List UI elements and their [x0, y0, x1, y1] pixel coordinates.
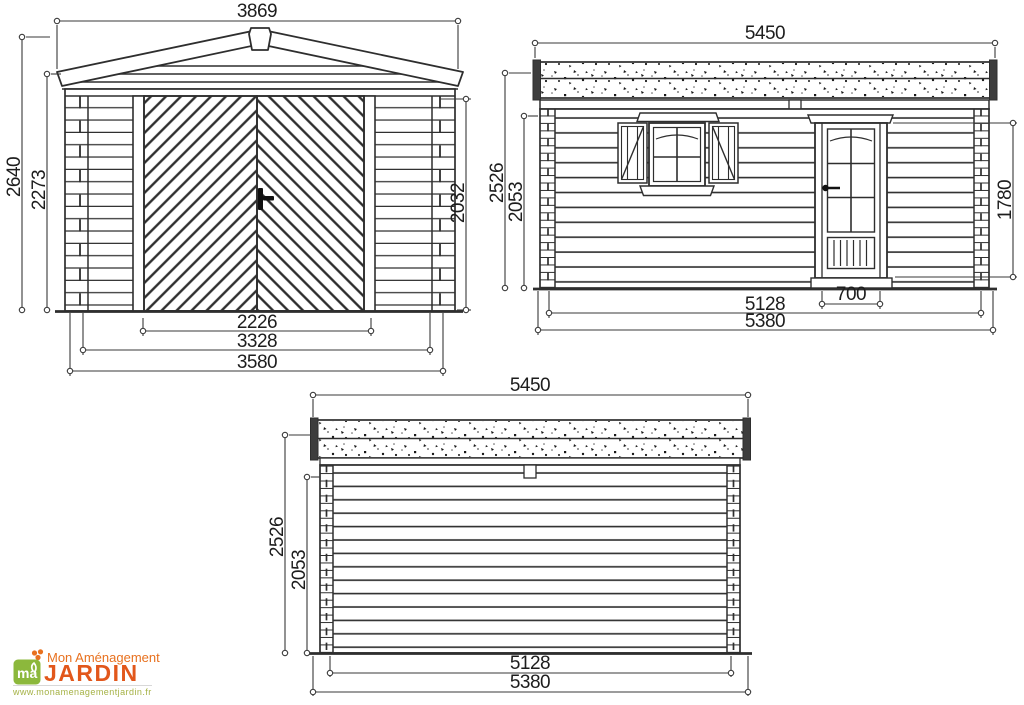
logo-brand-name: JARDIN — [44, 660, 139, 687]
window-shutter-right — [709, 123, 738, 183]
dim-front-total-height: 2640 — [4, 157, 25, 197]
side-view-drawing: 5450 2526 2053 1780 700 5128 5380 — [487, 23, 1017, 335]
dim-front-roof-width: 3869 — [237, 1, 277, 22]
rear-wall — [320, 465, 740, 653]
ridge-beam-joint — [524, 465, 536, 478]
rear-roof — [311, 418, 751, 465]
dim-front-door-height: 2032 — [448, 183, 469, 223]
front-roof — [57, 28, 463, 86]
window-frame — [649, 123, 705, 186]
logo-website-link[interactable]: www.monamenagementjardin.fr — [13, 685, 152, 697]
dim-side-wall-height: 2053 — [506, 182, 527, 222]
dim-rear-base-width: 5380 — [510, 672, 550, 693]
dim-side-total-height: 2526 — [487, 163, 508, 203]
window-shutter-left — [618, 123, 647, 183]
dim-rear-inner-width: 5128 — [510, 653, 550, 674]
dim-front-eave-height: 2273 — [29, 170, 50, 210]
dim-side-door-height: 1780 — [995, 180, 1016, 220]
dim-rear-total-height: 2526 — [267, 517, 288, 557]
dim-side-door-width: 700 — [836, 284, 866, 305]
dim-front-inner-width: 3328 — [237, 331, 277, 352]
side-window — [618, 113, 738, 196]
dim-side-base-width: 5380 — [745, 311, 785, 332]
rear-view-drawing: 5450 2526 2053 5128 5380 — [267, 375, 752, 696]
drawing-canvas: 3869 2640 2273 2032 2226 3328 3580 — [0, 0, 1024, 705]
dim-rear-roof-width: 5450 — [510, 375, 550, 396]
ridge-cap — [249, 28, 271, 50]
dim-rear-wall-height: 2053 — [289, 550, 310, 590]
side-roof — [533, 60, 997, 100]
side-door — [808, 115, 893, 288]
front-view-drawing: 3869 2640 2273 2032 2226 3328 3580 — [4, 1, 471, 376]
dim-side-roof-width: 5450 — [745, 23, 785, 44]
front-garage-door — [133, 96, 375, 311]
side-wall — [540, 100, 989, 288]
dim-front-base-width: 3580 — [237, 352, 277, 373]
dim-front-door-opening-width: 2226 — [237, 312, 277, 333]
monogram-icon: ma — [13, 659, 41, 685]
brand-logo: ma Mon Aménagement JARDIN www.monamenage… — [0, 640, 190, 705]
